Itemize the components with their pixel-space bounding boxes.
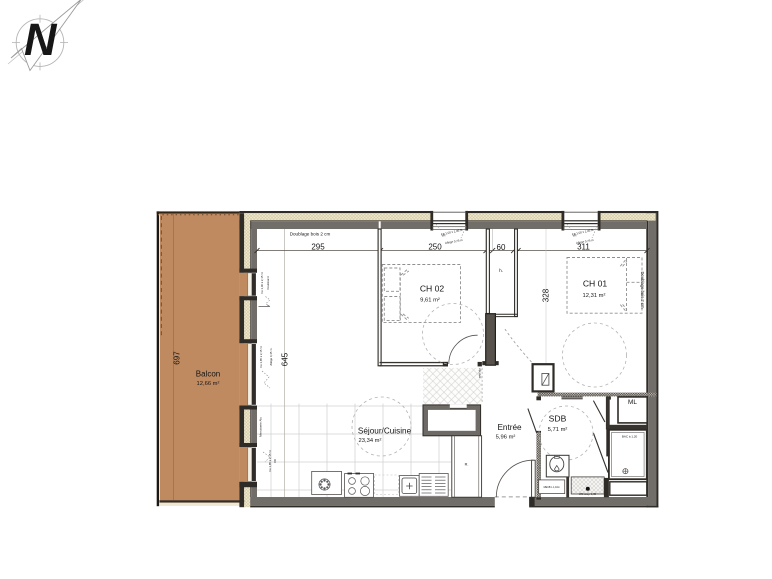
svg-text:Entrée: Entrée [497, 423, 522, 432]
svg-text:R.: R. [465, 463, 469, 467]
svg-text:VR: VR [572, 234, 576, 238]
svg-text:Séjour/Cuisine: Séjour/Cuisine [358, 427, 412, 436]
svg-text:WC susp. 1,30: WC susp. 1,30 [579, 492, 597, 496]
svg-text:VR: VR [273, 459, 277, 463]
svg-text:VR: VR [441, 234, 445, 238]
svg-text:Coulissant: Coulissant [266, 276, 270, 289]
svg-text:SDB: SDB [549, 414, 567, 424]
svg-text:Doublage bois 2 cm: Doublage bois 2 cm [290, 232, 331, 237]
svg-text:697: 697 [173, 351, 182, 365]
svg-text:5,96 m²: 5,96 m² [496, 435, 516, 441]
svg-text:ML: ML [628, 399, 637, 406]
svg-text:9,61 m²: 9,61 m² [420, 297, 440, 303]
svg-text:BAC à 1,20: BAC à 1,20 [622, 435, 638, 439]
svg-text:5,71 m²: 5,71 m² [548, 427, 568, 433]
svg-text:328: 328 [542, 288, 551, 302]
svg-text:Fe 1,85 x 2,15 ht: Fe 1,85 x 2,15 ht [268, 450, 272, 471]
svg-text:CH 01: CH 01 [583, 279, 608, 289]
svg-text:N: N [24, 14, 58, 65]
svg-text:23,34 m²: 23,34 m² [359, 438, 382, 444]
svg-text:645: 645 [281, 352, 290, 366]
svg-text:12,31 m²: 12,31 m² [583, 293, 606, 299]
svg-text:Balcon: Balcon [196, 370, 220, 379]
svg-text:MEUB L 1,10m: MEUB L 1,10m [544, 486, 560, 489]
svg-text:h.: h. [499, 268, 503, 273]
svg-text:Allège 0,35 m: Allège 0,35 m [269, 348, 273, 366]
svg-text:Fe 1,00 x 2,15 ht: Fe 1,00 x 2,15 ht [260, 272, 264, 293]
svg-text:Menuiserie Alu: Menuiserie Alu [259, 417, 263, 437]
svg-text:CH 02: CH 02 [420, 283, 445, 293]
svg-text:60: 60 [497, 243, 506, 252]
svg-text:seuil alu: seuil alu [478, 368, 482, 378]
svg-text:12,66 m²: 12,66 m² [197, 381, 220, 387]
svg-text:Doublage bois 2 cm: Doublage bois 2 cm [640, 271, 645, 309]
svg-text:Fe 1,85 x 2,15 ht: Fe 1,85 x 2,15 ht [259, 346, 263, 367]
svg-text:295: 295 [311, 243, 325, 252]
svg-text:250: 250 [428, 243, 442, 252]
